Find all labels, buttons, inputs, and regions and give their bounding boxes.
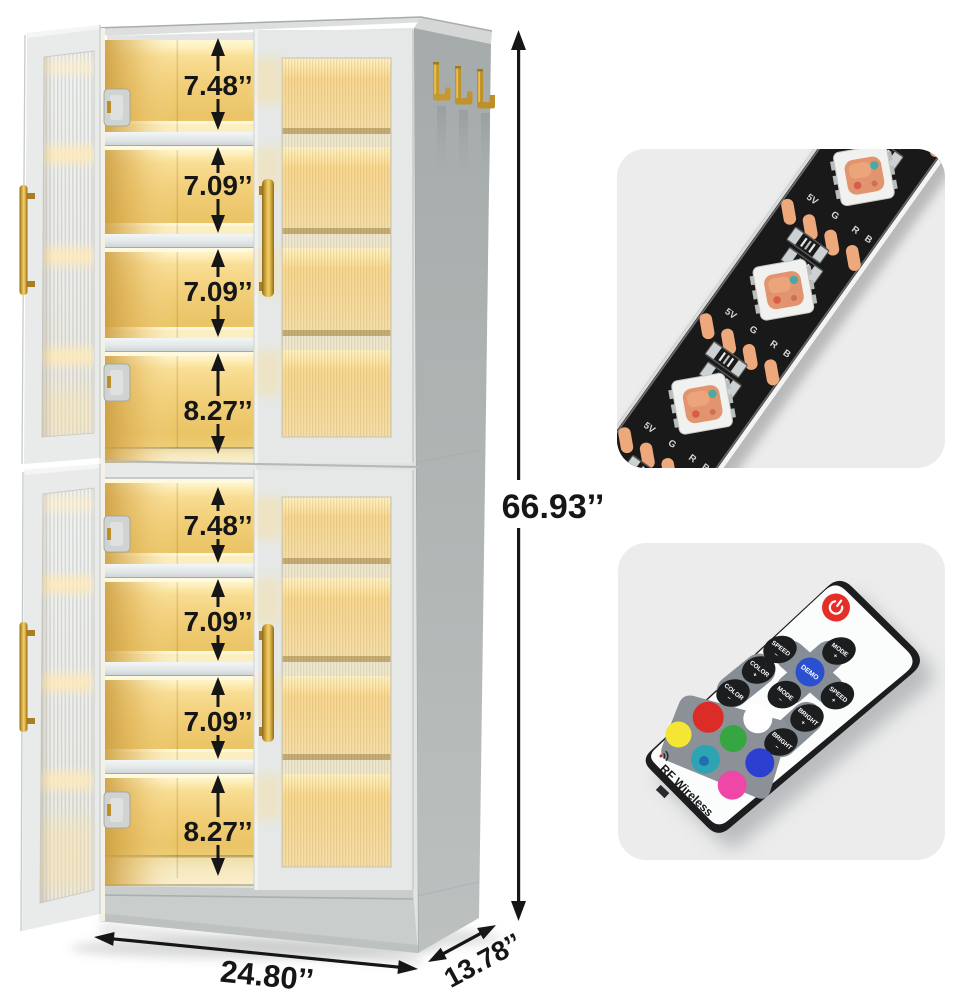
svg-text:7.09’’: 7.09’’: [183, 606, 252, 637]
svg-text:7.09’’: 7.09’’: [183, 706, 252, 737]
svg-text:8.27’’: 8.27’’: [183, 395, 252, 426]
svg-text:7.48’’: 7.48’’: [183, 70, 252, 101]
svg-text:66.93’’: 66.93’’: [502, 488, 605, 526]
svg-text:7.09’’: 7.09’’: [183, 276, 252, 307]
svg-text:7.09’’: 7.09’’: [183, 170, 252, 201]
svg-text:8.27’’: 8.27’’: [183, 816, 252, 847]
svg-text:7.48’’: 7.48’’: [183, 510, 252, 541]
